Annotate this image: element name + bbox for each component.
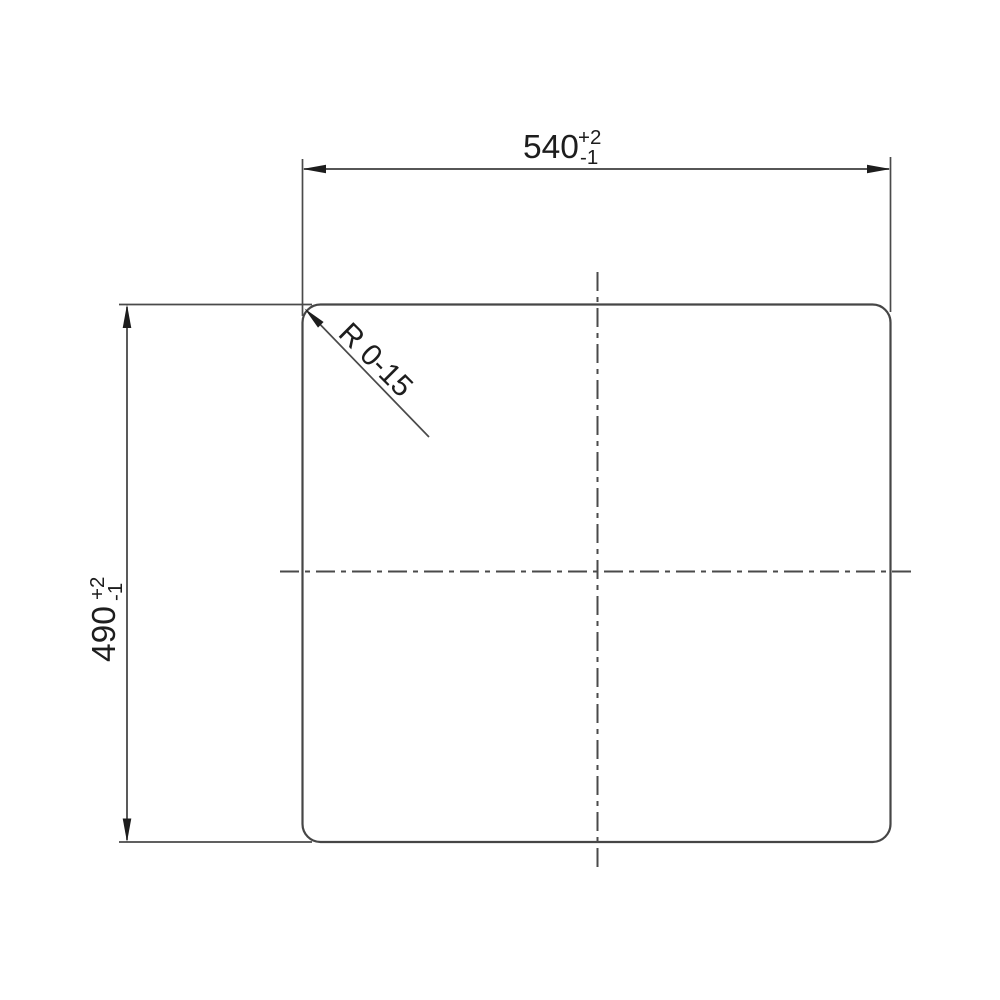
radius-leader-arrow-icon: [305, 309, 324, 328]
width-dim-value: 540: [523, 129, 579, 166]
height-dim-arrow-top-icon: [123, 305, 132, 329]
corner-radius-label: R 0-15: [332, 317, 419, 404]
height-dim-value: 490: [86, 606, 123, 662]
height-dim-arrow-bottom-icon: [123, 819, 132, 843]
technical-drawing-canvas: 540 +2 -1 490 +2 -1 R 0-15: [0, 0, 1000, 1000]
cutout-dimension-drawing: 540 +2 -1 490 +2 -1 R 0-15: [0, 0, 1000, 1000]
width-dim-tolerance-minus: -1: [580, 146, 598, 169]
width-dim-arrow-left-icon: [303, 165, 327, 174]
width-dim-arrow-right-icon: [867, 165, 891, 174]
height-dim-tolerance-minus: -1: [104, 583, 127, 601]
